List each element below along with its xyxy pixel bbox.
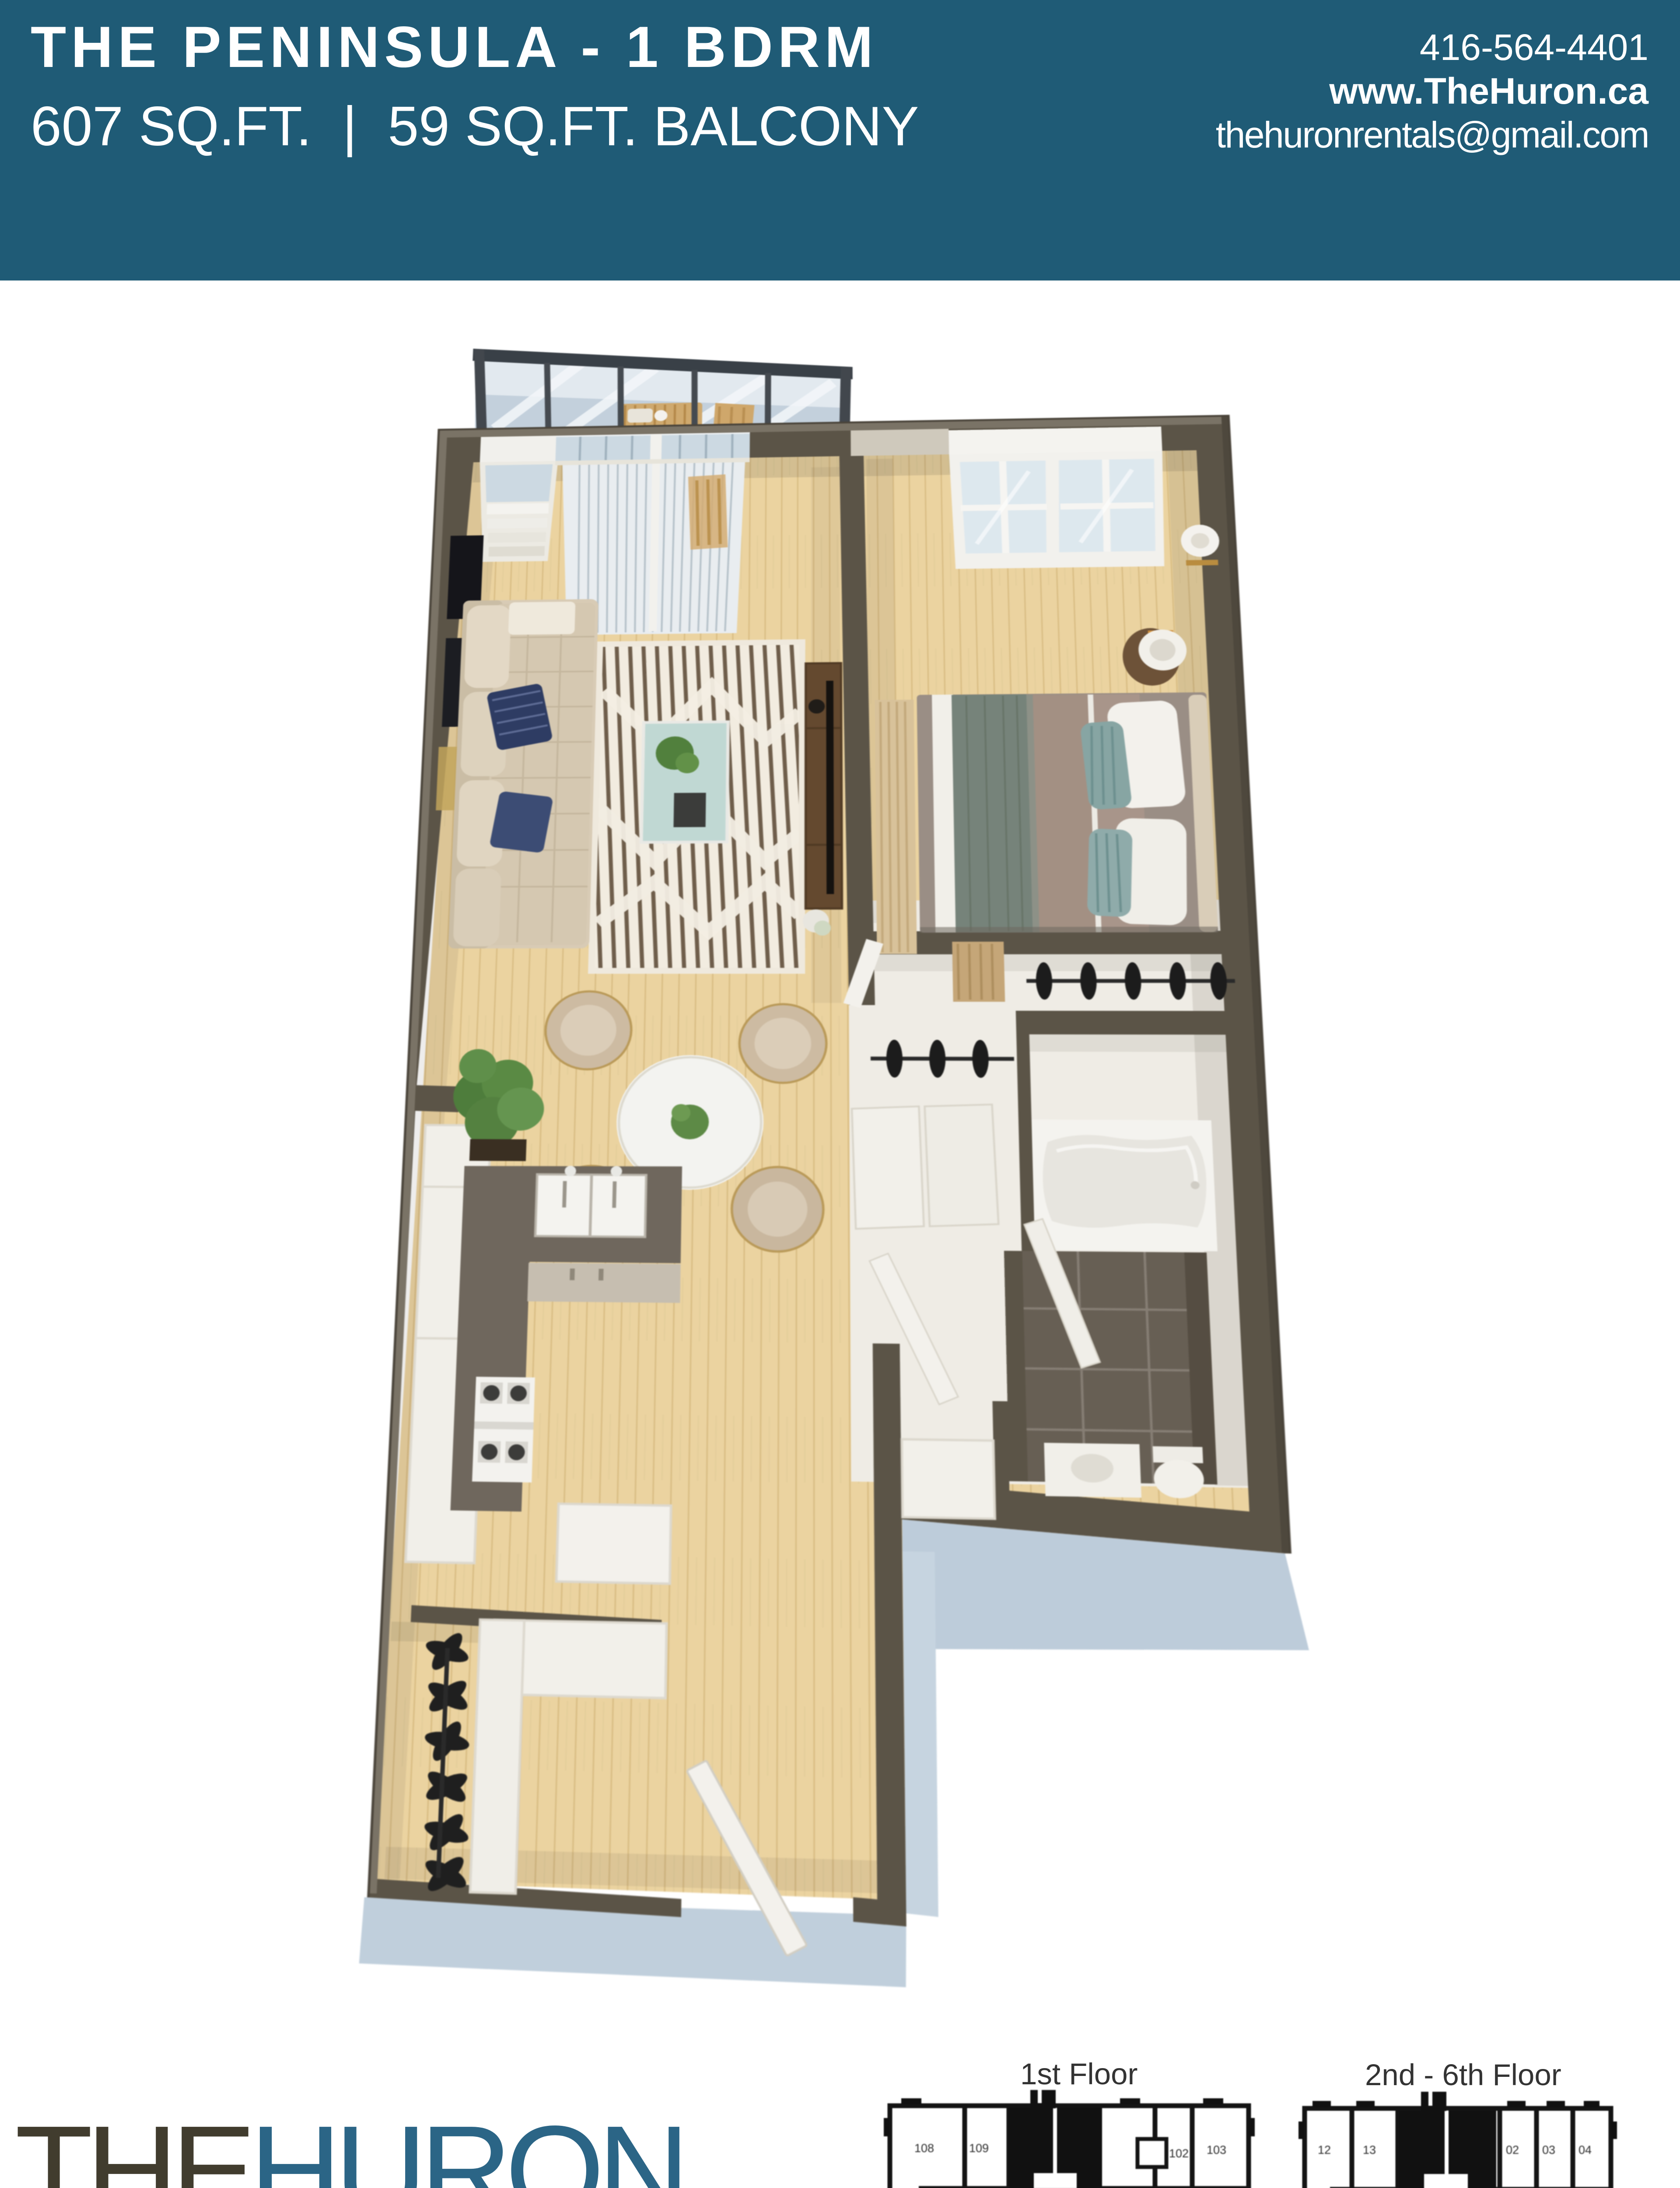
- svg-text:12: 12: [1318, 2143, 1331, 2156]
- svg-text:103: 103: [1207, 2143, 1226, 2156]
- svg-text:108: 108: [914, 2142, 934, 2155]
- svg-text:102: 102: [1169, 2147, 1189, 2160]
- svg-text:03: 03: [1542, 2143, 1555, 2156]
- svg-text:13: 13: [1363, 2143, 1376, 2156]
- svg-text:04: 04: [1578, 2143, 1592, 2156]
- svg-text:109: 109: [969, 2142, 989, 2155]
- svg-text:02: 02: [1506, 2143, 1519, 2156]
